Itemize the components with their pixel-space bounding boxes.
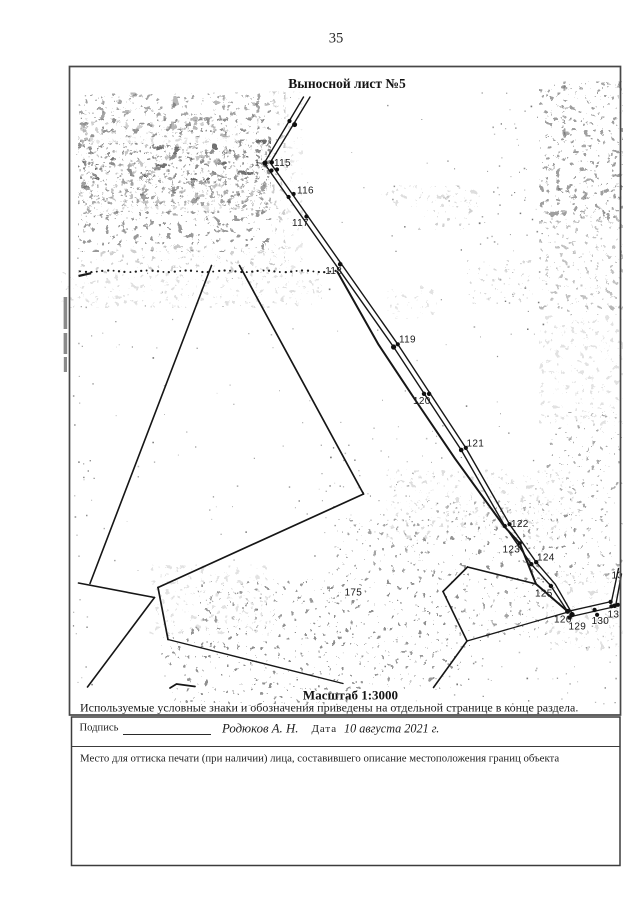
svg-text:123: 123 bbox=[503, 545, 521, 556]
svg-text:1: 1 bbox=[255, 159, 260, 168]
svg-text:118: 118 bbox=[325, 266, 342, 277]
svg-text:Родюков А. Н.: Родюков А. Н. bbox=[221, 722, 298, 736]
svg-text:120: 120 bbox=[413, 396, 431, 407]
svg-text:125: 125 bbox=[535, 589, 553, 600]
svg-text:Подпись: Подпись bbox=[80, 723, 119, 734]
svg-text:116: 116 bbox=[297, 186, 314, 197]
svg-text:121: 121 bbox=[467, 439, 485, 450]
svg-text:129: 129 bbox=[569, 622, 587, 633]
svg-text:117: 117 bbox=[292, 218, 309, 229]
svg-text:175: 175 bbox=[345, 588, 363, 599]
svg-text:119: 119 bbox=[399, 335, 416, 346]
svg-text:Дата: Дата bbox=[312, 723, 338, 735]
svg-text:Используемые условные знаки и: Используемые условные знаки и обозначени… bbox=[80, 701, 578, 715]
svg-text:124: 124 bbox=[537, 553, 555, 564]
svg-text:10 августа 2021 г.: 10 августа 2021 г. bbox=[344, 722, 439, 736]
svg-text:Место для оттиска печати (при: Место для оттиска печати (при наличии) л… bbox=[80, 753, 559, 765]
svg-text:115: 115 bbox=[274, 158, 291, 169]
svg-text:35: 35 bbox=[329, 31, 344, 47]
svg-text:Выносной лист №5: Выносной лист №5 bbox=[288, 76, 406, 91]
svg-text:122: 122 bbox=[511, 519, 529, 530]
